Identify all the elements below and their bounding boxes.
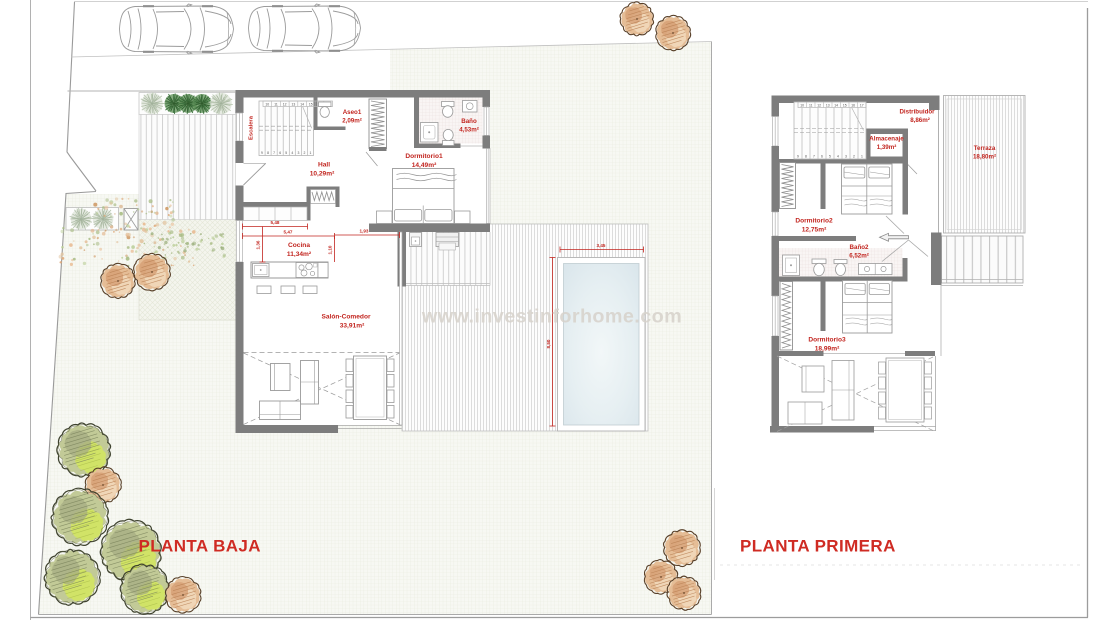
svg-text:Salón-Comedor: Salón-Comedor [321, 314, 371, 321]
svg-text:12: 12 [283, 103, 287, 107]
svg-text:Distribuidor: Distribuidor [899, 109, 935, 116]
svg-text:8,50: 8,50 [546, 339, 551, 348]
svg-text:11: 11 [274, 103, 278, 107]
svg-text:1: 1 [861, 155, 863, 159]
svg-text:18,80m²: 18,80m² [973, 154, 996, 161]
svg-text:6: 6 [821, 155, 823, 159]
svg-text:3: 3 [297, 151, 299, 155]
svg-text:2: 2 [303, 151, 305, 155]
svg-text:12: 12 [817, 104, 821, 108]
svg-text:Baño2: Baño2 [850, 244, 869, 251]
svg-text:15: 15 [843, 104, 847, 108]
svg-text:1,93: 1,93 [360, 229, 369, 234]
svg-text:5: 5 [285, 151, 287, 155]
svg-text:14: 14 [834, 104, 838, 108]
svg-text:12,75m²: 12,75m² [802, 227, 827, 234]
svg-text:11: 11 [809, 104, 813, 108]
svg-text:2,09m²: 2,09m² [342, 118, 362, 125]
svg-text:7: 7 [273, 151, 275, 155]
svg-text:5,47: 5,47 [284, 230, 293, 235]
svg-text:www.investinforhome.com: www.investinforhome.com [421, 306, 682, 328]
svg-text:16: 16 [851, 104, 855, 108]
svg-text:4: 4 [291, 151, 293, 155]
svg-text:5,48: 5,48 [271, 220, 280, 225]
svg-text:Baño: Baño [461, 118, 477, 125]
svg-text:17: 17 [860, 104, 864, 108]
svg-text:Terraza: Terraza [974, 145, 996, 152]
svg-text:6: 6 [279, 151, 281, 155]
svg-text:3,45: 3,45 [597, 243, 606, 248]
svg-text:13: 13 [826, 104, 830, 108]
svg-text:8: 8 [805, 155, 807, 159]
svg-text:Dormitorio1: Dormitorio1 [405, 153, 443, 160]
svg-text:Almacenaje: Almacenaje [869, 136, 904, 143]
svg-text:1: 1 [310, 151, 312, 155]
svg-text:4: 4 [837, 155, 839, 159]
svg-text:15: 15 [309, 103, 313, 107]
svg-text:8: 8 [267, 151, 269, 155]
svg-text:PLANTA BAJA: PLANTA BAJA [139, 537, 261, 556]
svg-text:10: 10 [265, 103, 269, 107]
svg-text:3: 3 [845, 155, 847, 159]
svg-text:11,34m²: 11,34m² [287, 251, 312, 258]
svg-text:Aseo1: Aseo1 [343, 109, 362, 116]
svg-text:5: 5 [829, 155, 831, 159]
svg-text:Hall: Hall [318, 162, 330, 169]
svg-text:13: 13 [292, 103, 296, 107]
svg-text:1,10: 1,10 [328, 245, 333, 254]
svg-text:33,91m²: 33,91m² [340, 323, 365, 330]
svg-text:18,99m²: 18,99m² [815, 346, 840, 353]
svg-text:10: 10 [800, 104, 804, 108]
svg-text:Escalera: Escalera [249, 115, 255, 140]
svg-text:9: 9 [261, 151, 263, 155]
svg-text:7: 7 [813, 155, 815, 159]
svg-text:Cocina: Cocina [288, 242, 310, 249]
svg-text:2: 2 [853, 155, 855, 159]
svg-text:Dormitorio2: Dormitorio2 [795, 218, 833, 225]
svg-text:9: 9 [797, 155, 799, 159]
svg-text:8,86m²: 8,86m² [910, 117, 930, 124]
svg-text:4,53m²: 4,53m² [459, 127, 479, 134]
svg-text:1,39m²: 1,39m² [877, 144, 897, 151]
svg-text:6,52m²: 6,52m² [849, 253, 869, 260]
svg-text:10,29m²: 10,29m² [310, 171, 335, 178]
svg-text:1,36: 1,36 [256, 240, 261, 249]
svg-text:14,49m²: 14,49m² [412, 162, 437, 169]
svg-text:Dormitorio3: Dormitorio3 [808, 337, 846, 344]
svg-text:14: 14 [300, 103, 304, 107]
svg-text:PLANTA PRIMERA: PLANTA PRIMERA [740, 537, 896, 556]
